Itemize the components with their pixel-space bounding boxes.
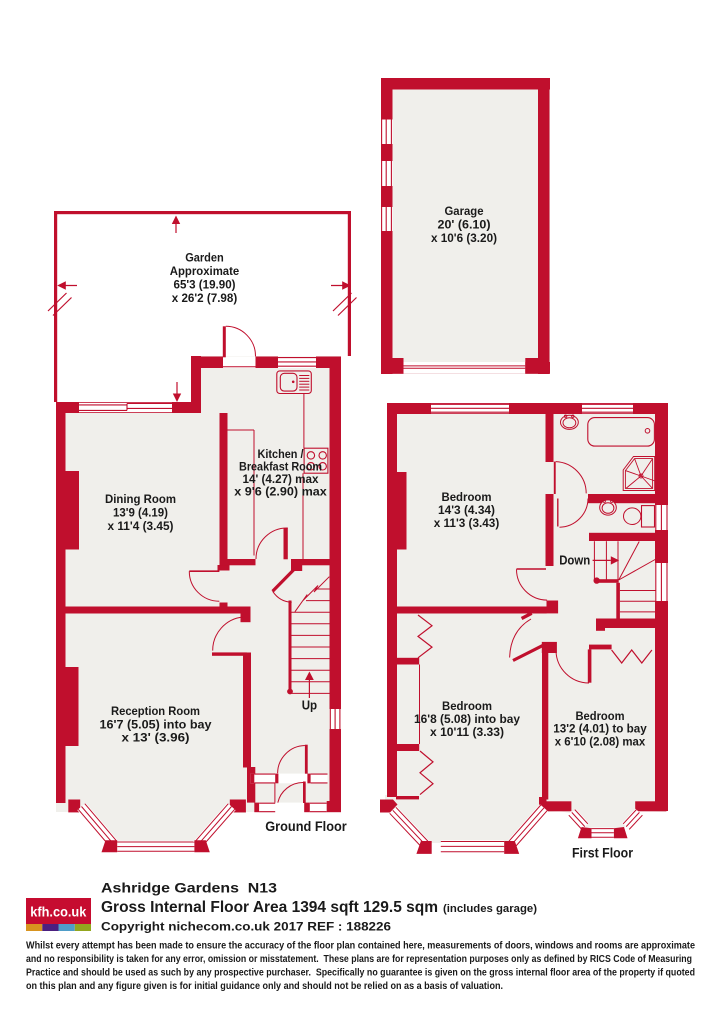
- svg-text:Copyright nichecom.co.uk 2017: Copyright nichecom.co.uk 2017 REF : 1882…: [101, 922, 391, 934]
- svg-text:Reception Room: Reception Room: [111, 704, 200, 718]
- svg-text:First Floor: First Floor: [572, 846, 634, 861]
- svg-text:x 10'11 (3.33): x 10'11 (3.33): [430, 725, 504, 739]
- svg-text:Ground Floor: Ground Floor: [265, 819, 347, 834]
- svg-text:x 13' (3.96): x 13' (3.96): [122, 731, 190, 745]
- svg-text:x 10'6 (3.20): x 10'6 (3.20): [431, 231, 497, 245]
- svg-text:x 6'10 (2.08) max: x 6'10 (2.08) max: [555, 735, 646, 749]
- svg-text:x 11'4 (3.45): x 11'4 (3.45): [108, 519, 174, 533]
- svg-text:(includes garage): (includes garage): [443, 903, 537, 915]
- svg-text:Bedroom: Bedroom: [442, 490, 492, 504]
- svg-text:on this plan and any figure gi: on this plan and any figure given is for…: [26, 981, 503, 992]
- svg-text:65'3 (19.90): 65'3 (19.90): [174, 278, 236, 292]
- svg-text:Practice and should be used as: Practice and should be used as such by a…: [26, 968, 695, 979]
- svg-text:20' (6.10): 20' (6.10): [438, 218, 491, 232]
- svg-text:Bedroom: Bedroom: [442, 699, 492, 713]
- svg-text:x 26'2 (7.98): x 26'2 (7.98): [172, 291, 238, 305]
- svg-text:Garage: Garage: [445, 204, 484, 218]
- svg-text:x 9'6 (2.90) max: x 9'6 (2.90) max: [234, 485, 327, 499]
- svg-text:14'3 (4.34): 14'3 (4.34): [438, 503, 495, 517]
- svg-text:Gross Internal Floor Area 1394: Gross Internal Floor Area 1394 sqft 129.…: [101, 899, 438, 916]
- svg-text:13'2 (4.01) to bay: 13'2 (4.01) to bay: [553, 722, 647, 736]
- svg-text:and no responsibility is taken: and no responsibility is taken for any e…: [26, 954, 692, 965]
- svg-text:x 11'3 (3.43): x 11'3 (3.43): [434, 516, 500, 530]
- svg-text:Down: Down: [559, 554, 590, 568]
- svg-text:Dining Room: Dining Room: [105, 492, 176, 506]
- svg-text:Up: Up: [302, 699, 318, 713]
- svg-text:Garden: Garden: [185, 251, 224, 265]
- svg-text:kfh.co.uk: kfh.co.uk: [30, 904, 86, 920]
- svg-text:Ashridge Gardens N13: Ashridge Gardens N13: [101, 880, 277, 896]
- svg-text:13'9 (4.19): 13'9 (4.19): [113, 506, 168, 520]
- svg-text:16'7 (5.05) into bay: 16'7 (5.05) into bay: [100, 718, 212, 732]
- svg-text:Approximate: Approximate: [170, 264, 240, 278]
- svg-text:16'8 (5.08) into bay: 16'8 (5.08) into bay: [414, 712, 520, 726]
- svg-text:Whilst every attempt has been: Whilst every attempt has been made to en…: [26, 941, 696, 952]
